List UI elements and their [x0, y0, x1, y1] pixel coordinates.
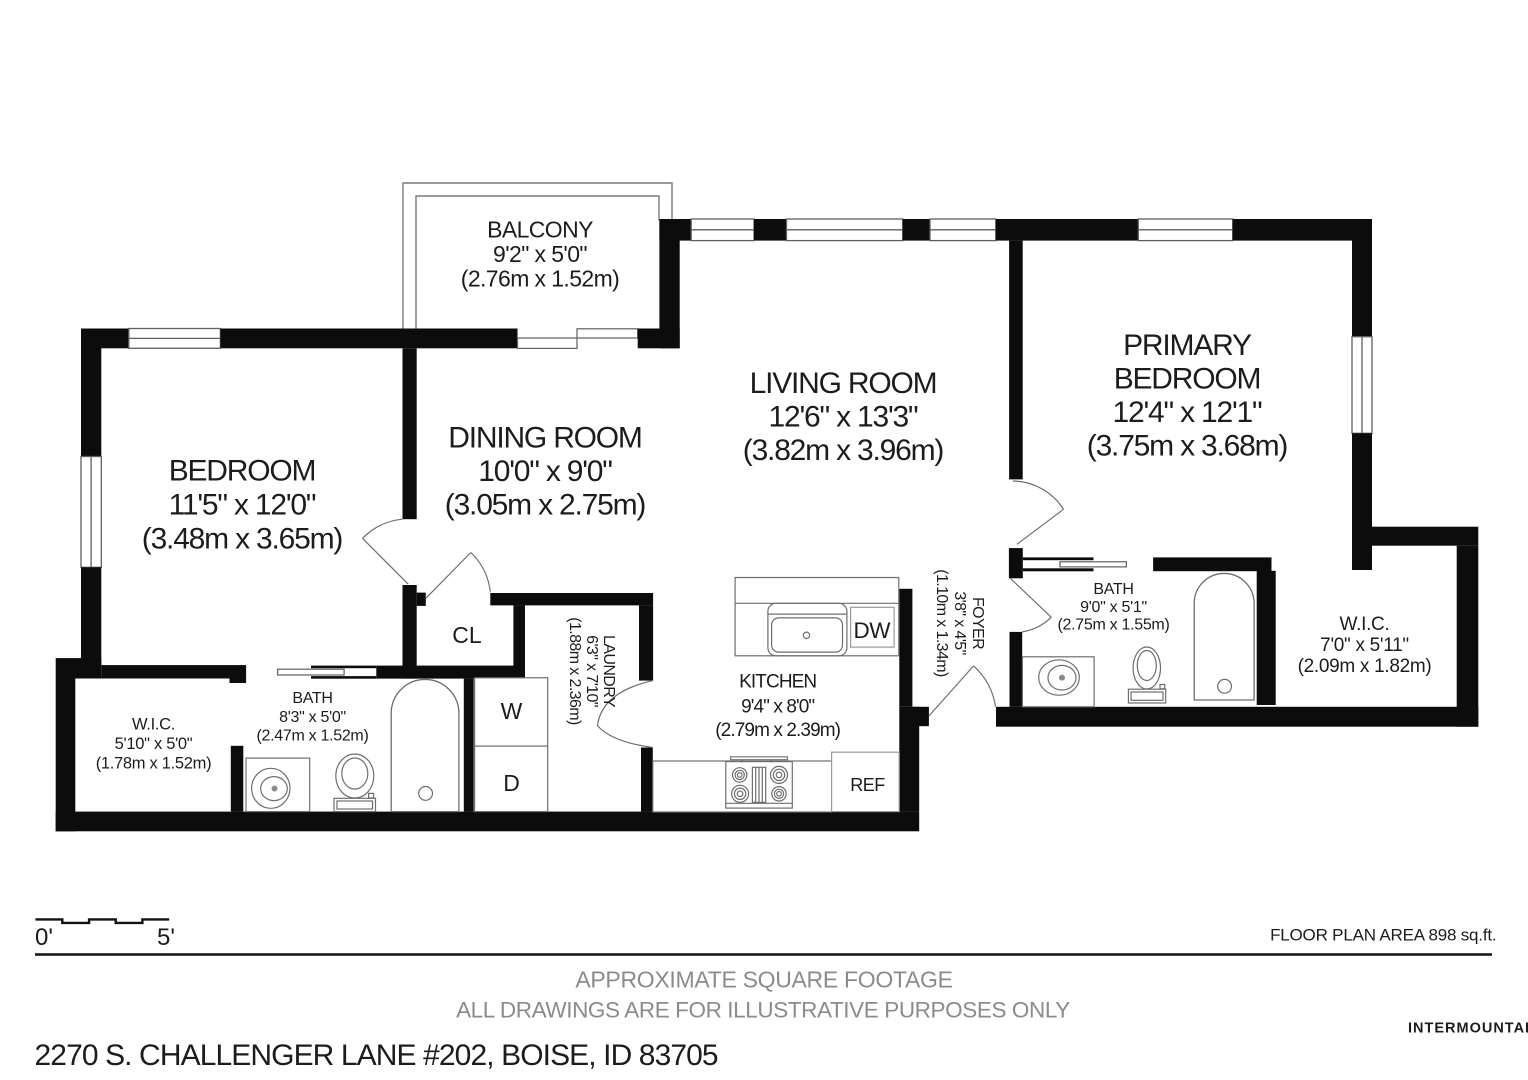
svg-text:11'5" x 12'0": 11'5" x 12'0" — [169, 489, 316, 522]
svg-text:BALCONY: BALCONY — [487, 217, 593, 243]
svg-text:BEDROOM: BEDROOM — [169, 455, 316, 488]
svg-text:APPROXIMATE SQUARE FOOTAGE: APPROXIMATE SQUARE FOOTAGE — [575, 966, 952, 992]
svg-text:(2.75m x 1.55m): (2.75m x 1.55m) — [1058, 617, 1170, 634]
svg-text:5': 5' — [157, 924, 175, 951]
svg-text:12'6" x 13'3": 12'6" x 13'3" — [769, 401, 918, 434]
svg-text:(3.48m x 3.65m): (3.48m x 3.65m) — [142, 523, 343, 556]
svg-text:FLOOR PLAN AREA 898 sq.ft.: FLOOR PLAN AREA 898 sq.ft. — [1270, 926, 1496, 945]
svg-text:10'0" x 9'0": 10'0" x 9'0" — [478, 455, 612, 488]
svg-text:FOYER: FOYER — [969, 597, 986, 649]
svg-text:8'3" x 5'0": 8'3" x 5'0" — [279, 709, 346, 726]
svg-text:9'2" x 5'0": 9'2" x 5'0" — [493, 241, 587, 267]
svg-text:LIVING ROOM: LIVING ROOM — [750, 367, 937, 400]
svg-text:9'0" x 5'1": 9'0" x 5'1" — [1080, 599, 1147, 616]
svg-text:9'4" x 8'0": 9'4" x 8'0" — [741, 697, 814, 718]
svg-text:DW: DW — [854, 618, 892, 643]
svg-text:D: D — [503, 770, 520, 796]
svg-text:3'8" x 4'5": 3'8" x 4'5" — [951, 591, 968, 654]
svg-text:6'3" x 7'10": 6'3" x 7'10" — [583, 635, 600, 707]
svg-text:REF: REF — [850, 775, 885, 795]
svg-text:(2.09m x 1.82m): (2.09m x 1.82m) — [1298, 656, 1432, 677]
svg-text:W.I.C.: W.I.C. — [132, 715, 175, 733]
svg-text:5'10" x 5'0": 5'10" x 5'0" — [115, 735, 193, 753]
svg-text:BATH: BATH — [292, 690, 332, 707]
svg-text:PRIMARY: PRIMARY — [1123, 329, 1252, 362]
svg-text:(1.88m x 2.36m): (1.88m x 2.36m) — [566, 617, 583, 725]
svg-text:INTERMOUNTAIN: INTERMOUNTAIN — [1408, 1021, 1528, 1037]
svg-text:(3.05m x 2.75m): (3.05m x 2.75m) — [445, 489, 646, 522]
svg-text:(1.10m x 1.34m): (1.10m x 1.34m) — [933, 569, 950, 677]
svg-text:KITCHEN: KITCHEN — [739, 672, 816, 693]
svg-text:12'4" x 12'1": 12'4" x 12'1" — [1113, 396, 1262, 429]
svg-text:CL: CL — [452, 622, 482, 648]
svg-text:BEDROOM: BEDROOM — [1114, 363, 1261, 396]
svg-text:W: W — [501, 698, 523, 724]
svg-text:(2.47m x 1.52m): (2.47m x 1.52m) — [257, 728, 369, 745]
svg-text:DINING ROOM: DINING ROOM — [448, 422, 641, 455]
svg-text:BATH: BATH — [1093, 581, 1133, 598]
svg-text:0': 0' — [35, 924, 53, 951]
svg-text:7'0" x 5'11": 7'0" x 5'11" — [1320, 635, 1409, 656]
svg-text:ALL DRAWINGS ARE FOR ILLUSTRAT: ALL DRAWINGS ARE FOR ILLUSTRATIVE PURPOS… — [456, 997, 1070, 1022]
svg-text:W.I.C.: W.I.C. — [1340, 614, 1390, 635]
svg-text:(3.82m x 3.96m): (3.82m x 3.96m) — [743, 434, 944, 467]
svg-text:(2.76m x 1.52m): (2.76m x 1.52m) — [461, 266, 619, 292]
svg-text:(2.79m x 2.39m): (2.79m x 2.39m) — [715, 720, 840, 741]
svg-text:(1.78m x 1.52m): (1.78m x 1.52m) — [96, 754, 212, 772]
svg-text:LAUNDRY: LAUNDRY — [600, 635, 617, 708]
svg-text:2270 S. CHALLENGER LANE #202,: 2270 S. CHALLENGER LANE #202, BOISE, ID … — [35, 1039, 718, 1072]
svg-text:(3.75m x 3.68m): (3.75m x 3.68m) — [1087, 430, 1288, 463]
